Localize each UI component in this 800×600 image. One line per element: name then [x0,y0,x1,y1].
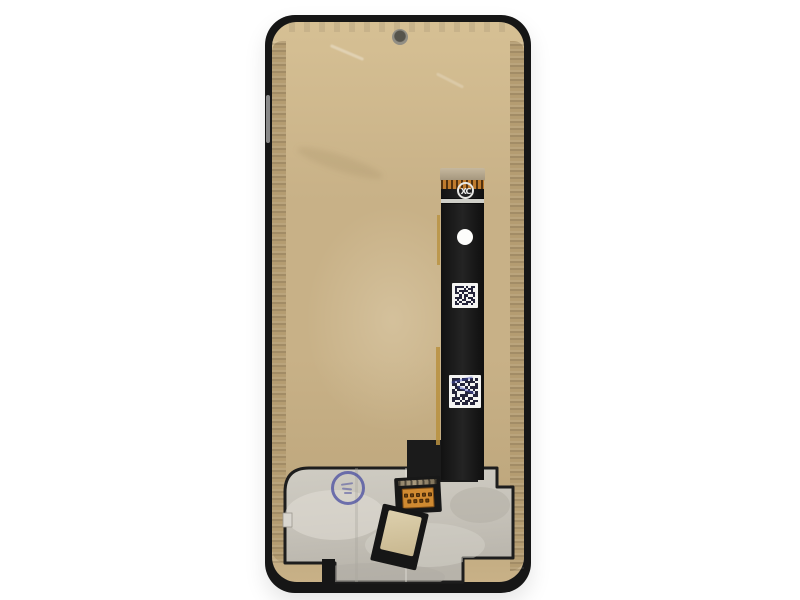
connector-pin-grid [402,487,435,509]
frame-reflection [266,95,270,143]
qc-stamp [331,471,365,505]
connector-shield-strip [398,479,436,486]
qr-sticker-lower [449,375,481,408]
flex-punch-hole [457,229,473,245]
flex-separator-band [441,199,484,203]
gold-trace-lower [436,347,440,445]
plate-pull-tab [283,513,292,527]
plate-notch [322,559,335,587]
qr-sticker-upper [452,283,478,308]
brand-logo-icon: XC [457,182,474,199]
photo-canvas: XC [0,0,800,600]
qc-stamp-glyphs [340,481,356,495]
camera-hole [392,29,408,45]
foam-pad [380,510,422,557]
lcd-assembly: XC [265,15,531,593]
gold-trace-upper [437,215,440,265]
